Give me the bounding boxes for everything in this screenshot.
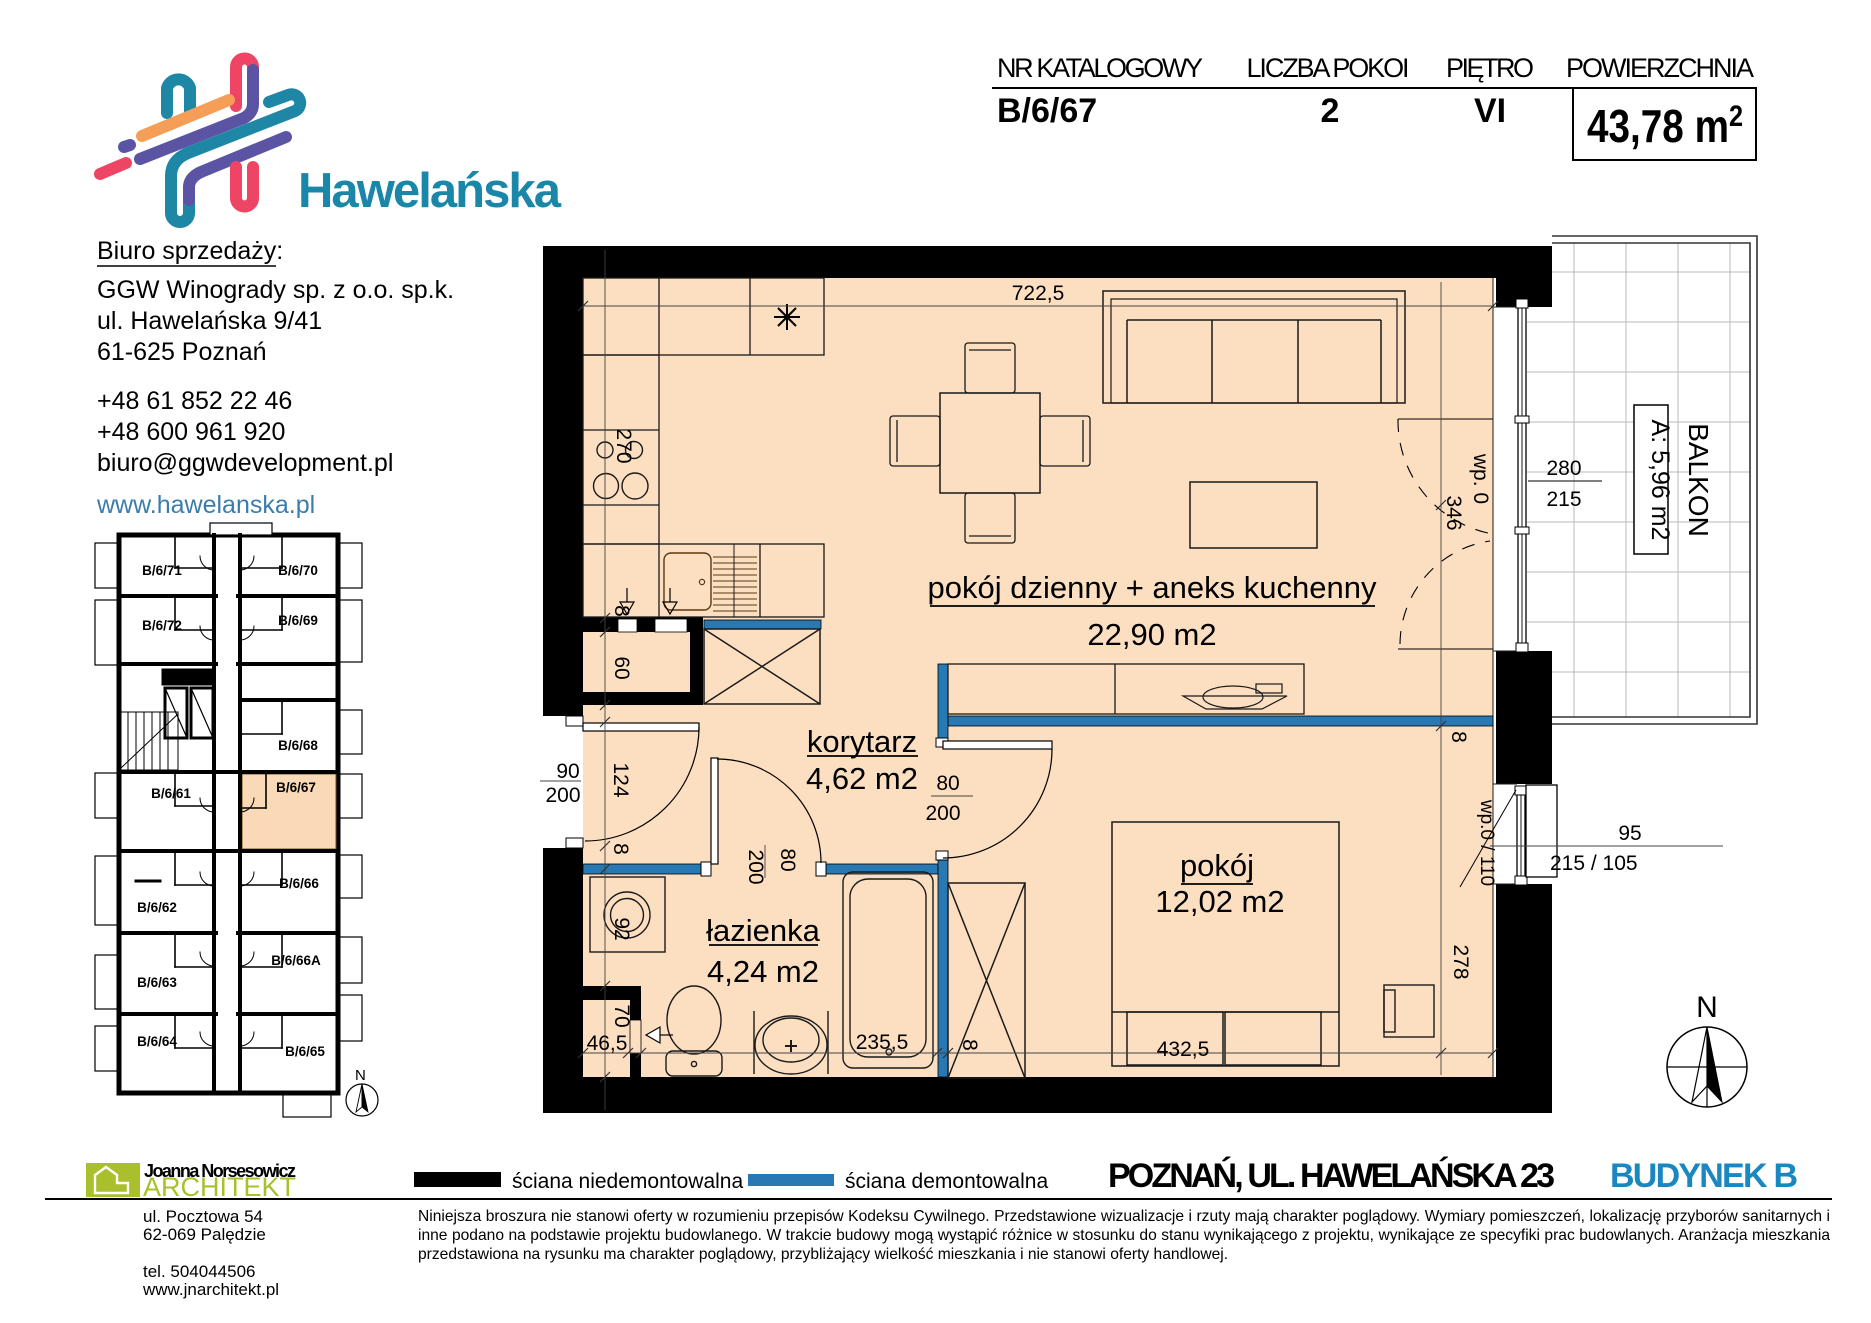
- svg-text:95: 95: [1618, 822, 1641, 845]
- svg-text:łazienka: łazienka: [706, 913, 820, 948]
- svg-text:346: 346: [1442, 495, 1465, 530]
- svg-text:8: 8: [958, 1039, 981, 1051]
- svg-text:A: 5,96 m2: A: 5,96 m2: [1646, 420, 1674, 541]
- svg-text:215: 215: [1546, 488, 1581, 511]
- svg-text:korytarz: korytarz: [807, 724, 917, 759]
- svg-text:ul. Hawelańska 9/41: ul. Hawelańska 9/41: [97, 307, 322, 335]
- svg-text:61-625 Poznań: 61-625 Poznań: [97, 338, 267, 366]
- svg-text:+48 600 961 920: +48 600 961 920: [97, 418, 285, 446]
- svg-text:BALKON: BALKON: [1683, 423, 1714, 537]
- svg-text:B/6/63: B/6/63: [137, 975, 177, 990]
- svg-text:+48 61 852 22 46: +48 61 852 22 46: [97, 387, 292, 415]
- svg-text:8: 8: [1447, 731, 1470, 743]
- svg-text:215 / 105: 215 / 105: [1550, 852, 1638, 875]
- svg-text:ARCHITEKT: ARCHITEKT: [143, 1172, 296, 1202]
- svg-text:PIĘTRO: PIĘTRO: [1446, 53, 1534, 83]
- svg-text:N: N: [355, 1067, 366, 1084]
- svg-text:NR KATALOGOWY: NR KATALOGOWY: [997, 53, 1203, 83]
- svg-text:12,02 m2: 12,02 m2: [1155, 884, 1284, 919]
- svg-text:92: 92: [610, 917, 633, 940]
- svg-text:B/6/67: B/6/67: [276, 780, 316, 795]
- svg-text:62-069 Palędzie: 62-069 Palędzie: [143, 1225, 266, 1244]
- svg-text:POZNAŃ, UL. HAWELAŃSKA 23: POZNAŃ, UL. HAWELAŃSKA 23: [1108, 1157, 1555, 1195]
- svg-text:8: 8: [609, 843, 632, 855]
- svg-text:ul. Pocztowa 54: ul. Pocztowa 54: [143, 1207, 263, 1226]
- svg-text:8: 8: [610, 605, 633, 617]
- svg-text:4,24 m2: 4,24 m2: [707, 954, 819, 989]
- svg-text:46,5: 46,5: [587, 1032, 628, 1055]
- svg-text:B/6/72: B/6/72: [142, 618, 182, 633]
- svg-text:LICZBA POKOI: LICZBA POKOI: [1247, 53, 1410, 83]
- svg-text:B/6/68: B/6/68: [278, 738, 318, 753]
- svg-text:B/6/66A: B/6/66A: [271, 953, 321, 968]
- svg-text:B/6/67: B/6/67: [997, 92, 1097, 130]
- svg-text:www.jnarchitekt.pl: www.jnarchitekt.pl: [142, 1280, 279, 1299]
- svg-text:wp. 0: wp. 0: [1469, 453, 1492, 504]
- svg-text:70: 70: [610, 1004, 633, 1027]
- svg-text:B/6/66: B/6/66: [279, 876, 319, 891]
- svg-text:B/6/70: B/6/70: [278, 563, 318, 578]
- svg-text:pokój: pokój: [1180, 848, 1254, 883]
- svg-text:278: 278: [1449, 944, 1472, 979]
- svg-text:GGW Winogrady sp. z o.o. sp.k.: GGW Winogrady sp. z o.o. sp.k.: [97, 276, 454, 304]
- svg-text:B/6/61: B/6/61: [151, 786, 191, 801]
- svg-text:200: 200: [545, 784, 580, 807]
- svg-text:80: 80: [936, 772, 959, 795]
- svg-text:B/6/64: B/6/64: [137, 1034, 177, 1049]
- svg-text:N: N: [1696, 991, 1718, 1024]
- svg-text:ściana demontowalna: ściana demontowalna: [845, 1170, 1048, 1193]
- svg-text:200: 200: [925, 802, 960, 825]
- svg-text:124: 124: [609, 762, 632, 797]
- svg-text:ściana niedemontowalna: ściana niedemontowalna: [512, 1170, 743, 1193]
- svg-text:B/6/65: B/6/65: [285, 1044, 325, 1059]
- svg-text:B/6/71: B/6/71: [142, 563, 182, 578]
- svg-text:235,5: 235,5: [856, 1031, 909, 1054]
- svg-text:22,90 m2: 22,90 m2: [1087, 617, 1216, 652]
- svg-text:B/6/62: B/6/62: [137, 900, 177, 915]
- svg-text:wp.0 / 110: wp.0 / 110: [1476, 799, 1497, 886]
- svg-text:2: 2: [1321, 92, 1340, 130]
- svg-text:www.hawelanska.pl: www.hawelanska.pl: [96, 491, 315, 519]
- svg-text:4,62 m2: 4,62 m2: [806, 761, 918, 796]
- svg-text:722,5: 722,5: [1012, 282, 1065, 305]
- svg-text:Hawelańska: Hawelańska: [298, 164, 562, 218]
- svg-text:90: 90: [556, 760, 579, 783]
- svg-text:B/6/69: B/6/69: [278, 613, 318, 628]
- svg-text:43,78 m2: 43,78 m2: [1587, 100, 1743, 152]
- svg-text:POWIERZCHNIA: POWIERZCHNIA: [1566, 53, 1754, 83]
- svg-text:biuro@ggwdevelopment.pl: biuro@ggwdevelopment.pl: [97, 449, 393, 477]
- svg-text:BUDYNEK B: BUDYNEK B: [1610, 1157, 1798, 1195]
- svg-text:280: 280: [1546, 457, 1581, 480]
- svg-text:270: 270: [612, 428, 635, 463]
- svg-text:VI: VI: [1474, 92, 1506, 130]
- svg-text:60: 60: [610, 656, 633, 679]
- svg-text:200: 200: [744, 849, 767, 884]
- svg-text:Biuro sprzedaży:: Biuro sprzedaży:: [97, 237, 283, 265]
- svg-text:pokój dzienny + aneks kuchenny: pokój dzienny + aneks kuchenny: [928, 570, 1377, 605]
- svg-text:80: 80: [776, 848, 799, 871]
- svg-text:tel. 504044506: tel. 504044506: [143, 1262, 256, 1281]
- svg-text:432,5: 432,5: [1157, 1038, 1210, 1061]
